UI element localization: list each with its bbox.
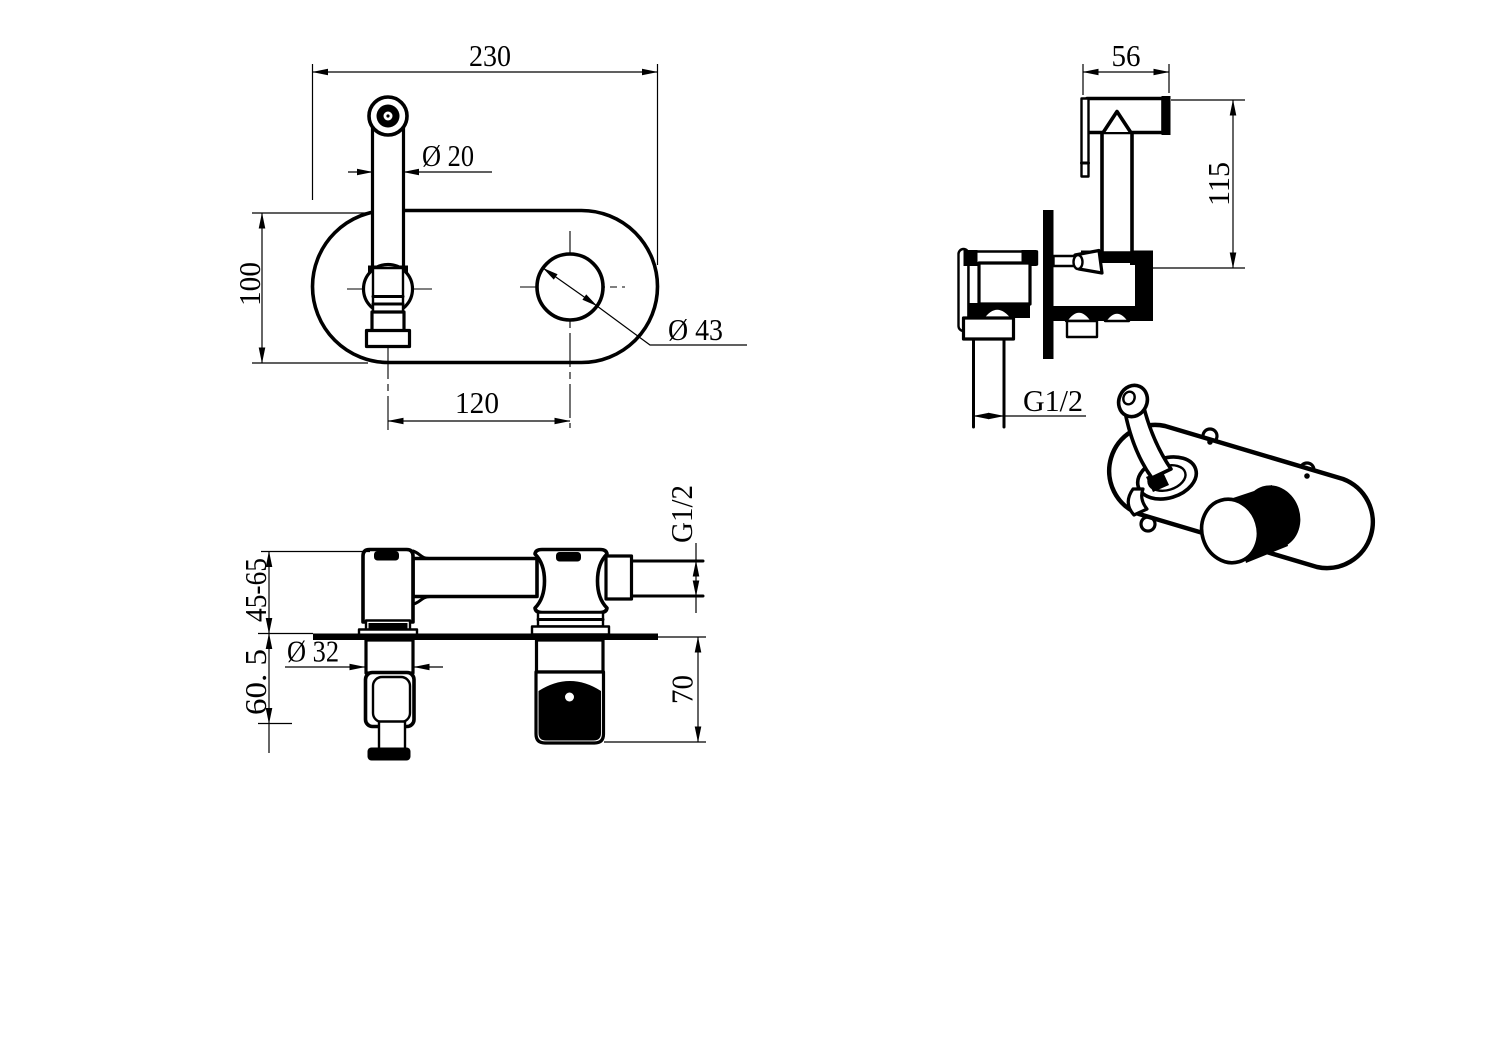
dim-label-holder-diameter: Ø 32 [287, 634, 339, 669]
section-view-dimensions: 45-65 60. 5 Ø 32 70 G1/2 [238, 485, 706, 753]
connecting-pipe [413, 559, 537, 597]
perspective-screw-dot-2 [1304, 473, 1310, 479]
dim-label-inlet-thread: G1/2 [664, 485, 699, 543]
valve-flange-plate [532, 627, 609, 635]
elbow-top-bar-left-nut [964, 250, 978, 266]
dim-label-sprayer-height: 115 [1201, 162, 1236, 206]
technical-drawing-canvas: 230 Ø 20 100 120 Ø 43 [0, 0, 1497, 1058]
dim-label-plate-height: 100 [232, 262, 267, 306]
dim-label-outlet-thread: G1/2 [1023, 383, 1083, 418]
dim-label-hole-spacing: 120 [455, 385, 499, 420]
dim-label-plate-width: 230 [469, 38, 511, 73]
dim-label-knob-hole-diameter: Ø 43 [668, 312, 723, 347]
holder-cup-inner [373, 677, 410, 722]
sprayer-nozzle-face [1082, 99, 1089, 177]
front-view: 230 Ø 20 100 120 Ø 43 [232, 38, 747, 430]
sprayer-head-end-cap [1162, 96, 1171, 135]
holder-top-notch [374, 551, 399, 561]
dim-label-handle-projection: 70 [665, 675, 700, 704]
valve-top-notch-section [556, 552, 581, 562]
inlet-stub [606, 556, 632, 599]
holder-end-cap [368, 748, 411, 761]
inlet-pipe-lines [632, 561, 704, 596]
drawing-sheet: 230 Ø 20 100 120 Ø 43 [0, 0, 1497, 1058]
perspective-view [1109, 381, 1373, 570]
side-view-part [959, 96, 1171, 427]
dim-label-sprayer-head-width: 56 [1112, 38, 1141, 73]
dim-label-wall-depth-range: 45-65 [238, 558, 273, 622]
holder-bracket-lower [367, 331, 410, 347]
dim-label-spout-diameter: Ø 20 [422, 138, 474, 173]
section-view: 45-65 60. 5 Ø 32 70 G1/2 [238, 485, 706, 761]
handle-pin-dot [565, 693, 574, 702]
escutcheon-plate-side [1043, 210, 1054, 359]
perspective-screw-dot-1 [1207, 439, 1213, 445]
holder-stem [379, 722, 405, 750]
sprayer-nozzle-front [369, 97, 407, 135]
dim-label-holder-projection: 60. 5 [238, 649, 273, 715]
holder-projection-extension-lines [258, 724, 292, 754]
front-view-part [313, 97, 658, 430]
valve-neck-below-wall [537, 640, 604, 672]
wall-depth-extension-lines [258, 552, 370, 634]
outlet-pipe-side [974, 339, 1005, 427]
sprayer-hose-nipple [1074, 255, 1083, 269]
valve-top-notch [1102, 263, 1130, 274]
sprayer-handle-side [1102, 130, 1132, 253]
side-view: 56 115 G1/2 [959, 38, 1246, 427]
valve-bottom-stub [1067, 321, 1097, 337]
section-view-part [313, 550, 703, 761]
sprayer-body-front [373, 127, 404, 268]
handle-grip-black [539, 681, 602, 741]
elbow-body [979, 263, 1030, 304]
holder-neck-below-wall [366, 640, 413, 673]
outlet-cap [964, 318, 1014, 339]
